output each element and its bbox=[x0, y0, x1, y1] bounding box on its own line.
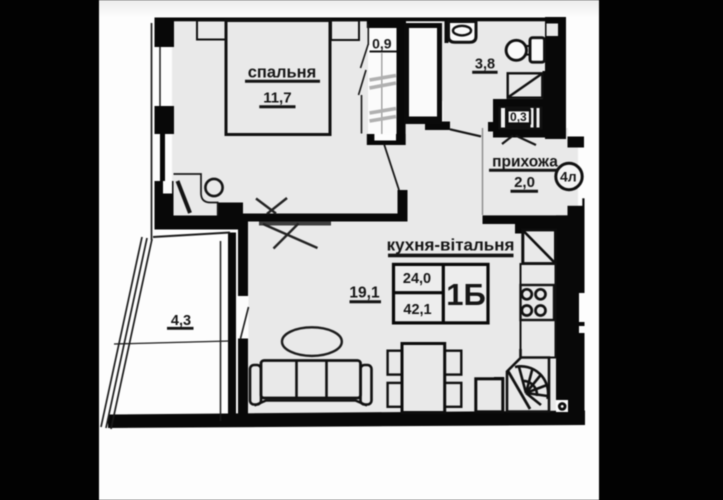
svg-text:19,1: 19,1 bbox=[349, 285, 380, 302]
svg-text:1Б: 1Б bbox=[446, 277, 486, 312]
svg-text:2,0: 2,0 bbox=[514, 174, 535, 191]
svg-text:прихожа: прихожа bbox=[492, 154, 558, 171]
svg-text:0,9: 0,9 bbox=[372, 36, 392, 52]
svg-text:спальня: спальня bbox=[248, 64, 317, 82]
svg-text:0,3: 0,3 bbox=[510, 110, 527, 124]
svg-text:42,1: 42,1 bbox=[403, 302, 431, 318]
svg-text:11,7: 11,7 bbox=[263, 90, 291, 107]
svg-text:кухня-вітальня: кухня-вітальня bbox=[387, 236, 515, 255]
svg-text:3,8: 3,8 bbox=[475, 57, 495, 73]
svg-text:4л: 4л bbox=[560, 169, 577, 185]
svg-text:24,0: 24,0 bbox=[403, 271, 431, 287]
svg-text:4,3: 4,3 bbox=[171, 313, 191, 329]
